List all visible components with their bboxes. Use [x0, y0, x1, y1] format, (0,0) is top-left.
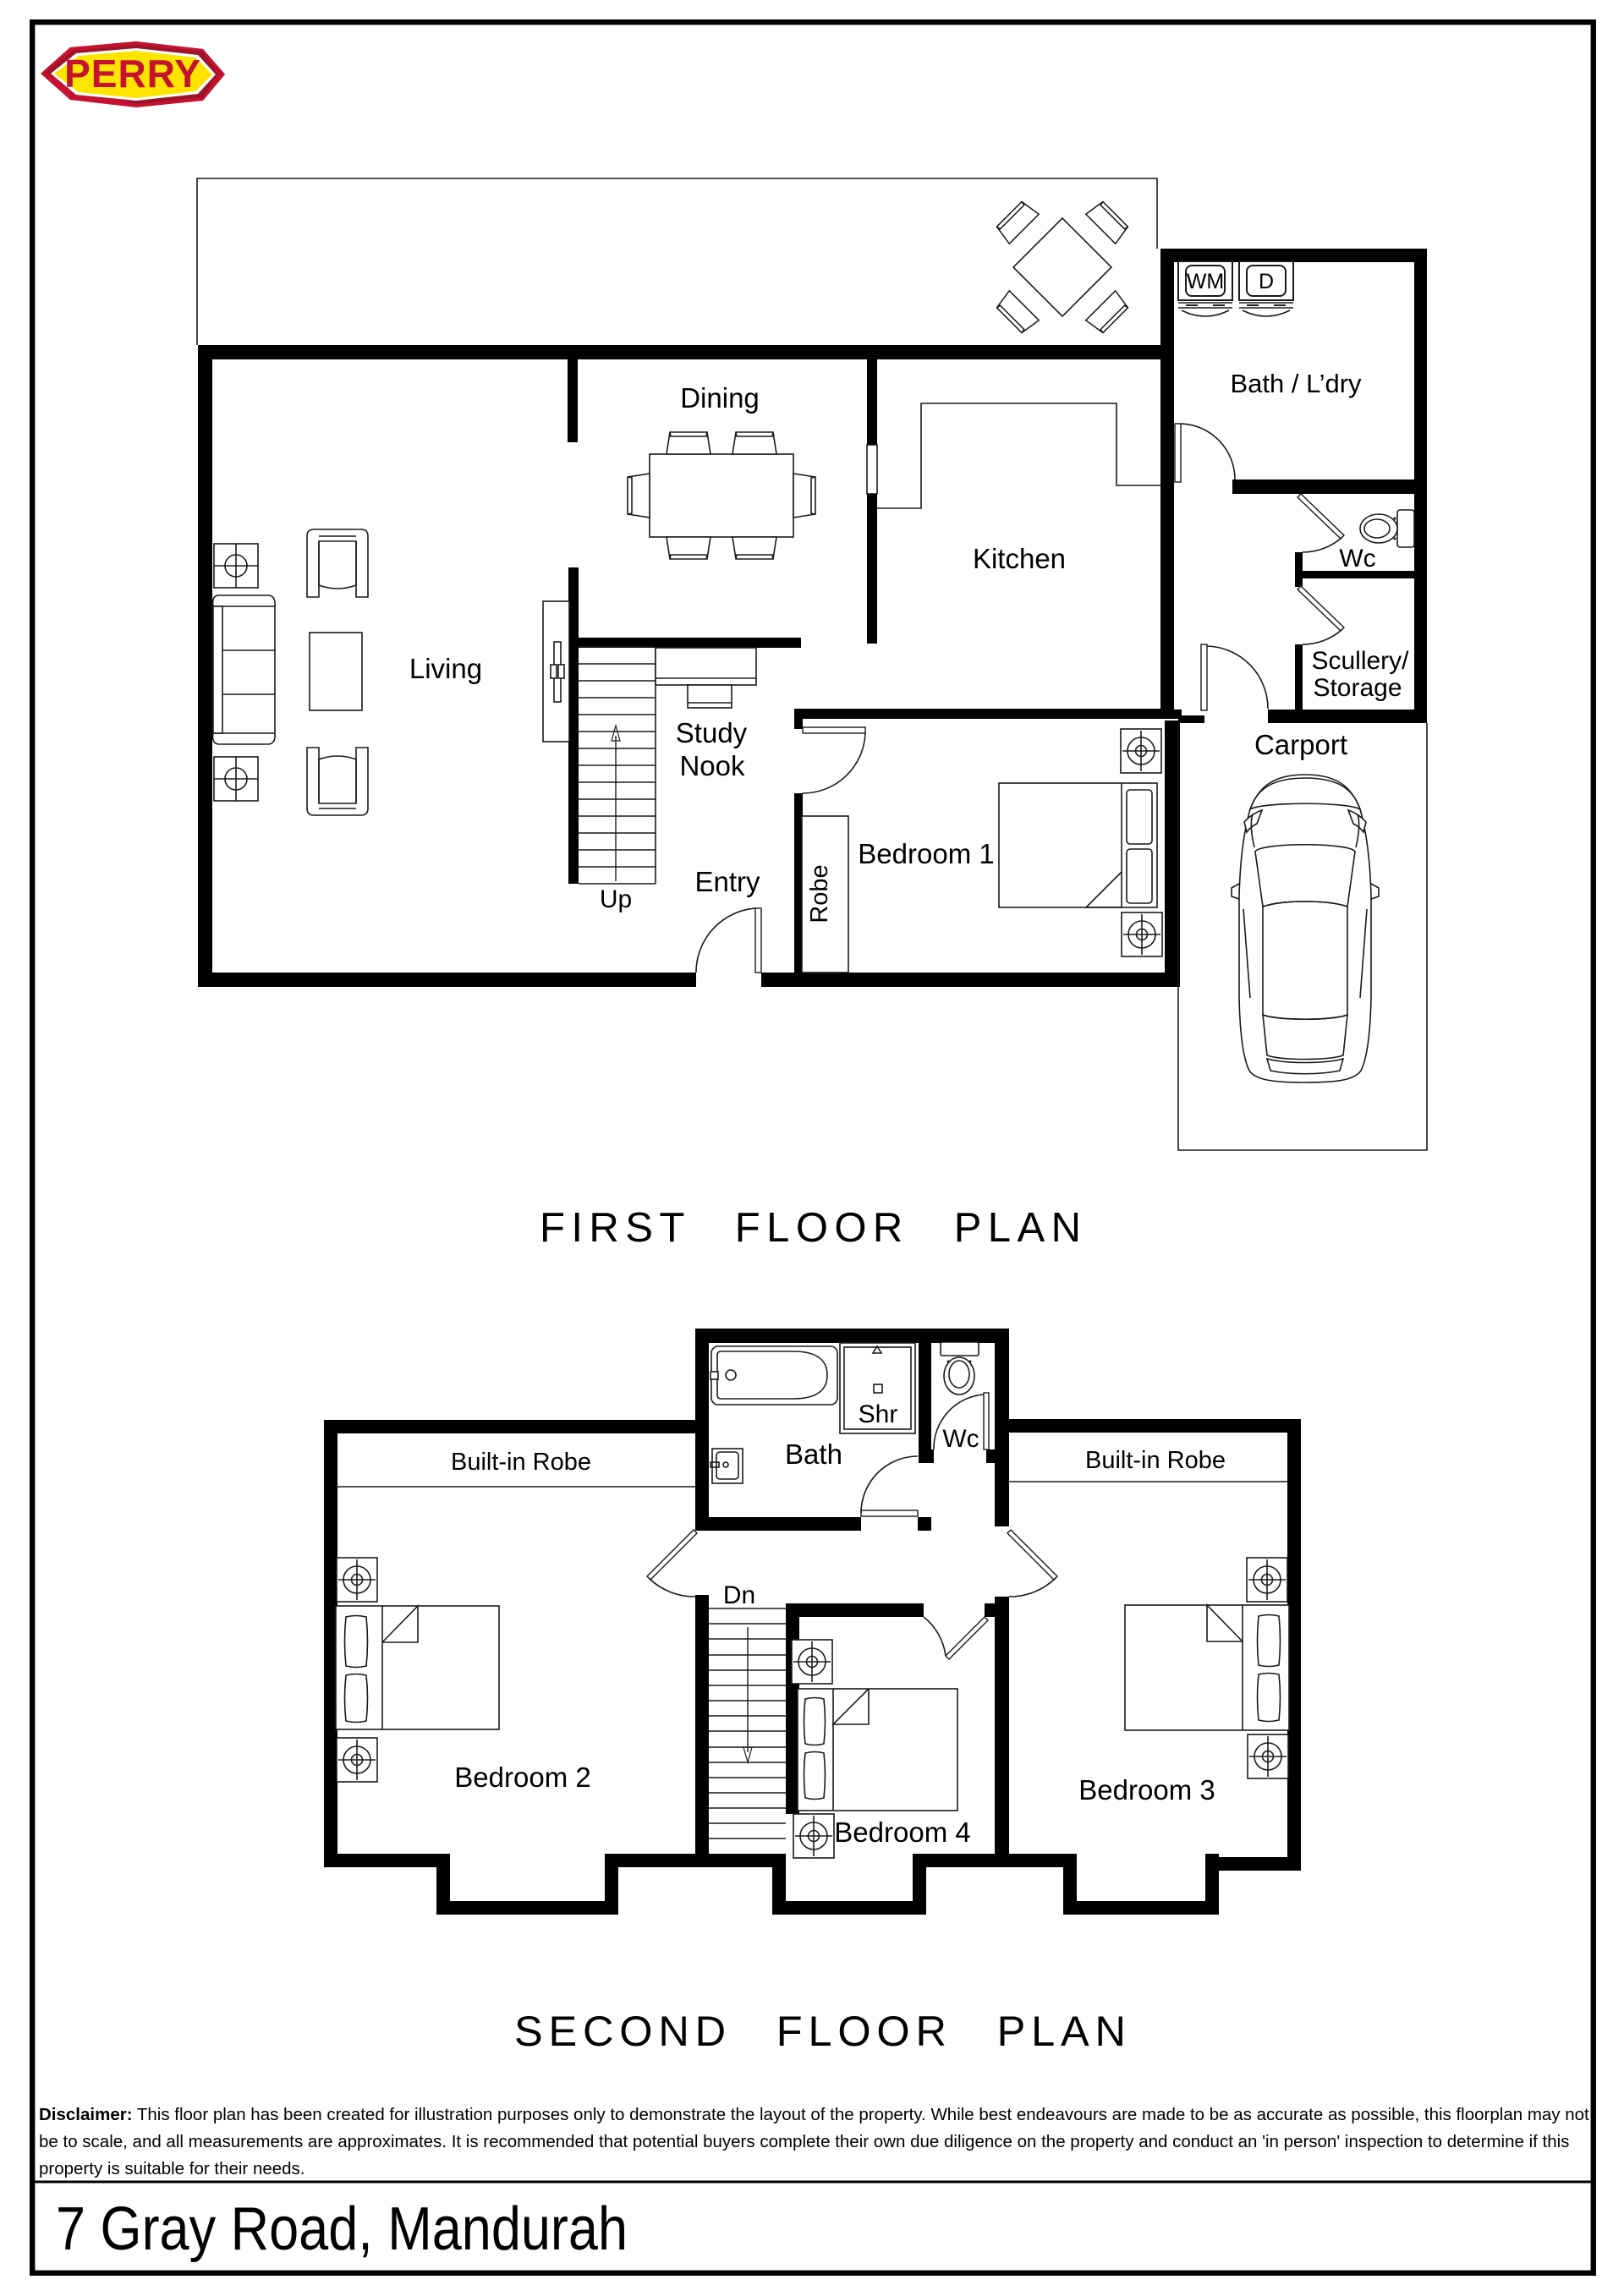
- svg-text:Dining: Dining: [680, 382, 760, 414]
- svg-text:Bath / L’dry: Bath / L’dry: [1230, 369, 1362, 398]
- svg-text:SECOND FLOOR PLAN: SECOND FLOOR PLAN: [514, 2007, 1126, 2055]
- svg-text:Kitchen: Kitchen: [973, 543, 1066, 574]
- svg-text:Shr: Shr: [859, 1400, 898, 1428]
- svg-text:Wc: Wc: [1339, 545, 1375, 573]
- svg-text:Living: Living: [409, 653, 482, 684]
- svg-text:be to scale, and all measureme: be to scale, and all measurements are ap…: [39, 2132, 1569, 2151]
- svg-text:Bedroom 2: Bedroom 2: [454, 1762, 590, 1793]
- svg-text:WM: WM: [1187, 270, 1224, 293]
- svg-text:Bedroom 1: Bedroom 1: [858, 838, 994, 869]
- svg-text:Bedroom 4: Bedroom 4: [834, 1817, 970, 1848]
- svg-text:Disclaimer: This floor plan ha: Disclaimer: This floor plan has been cre…: [39, 2105, 1589, 2124]
- svg-text:Up: Up: [600, 885, 632, 913]
- svg-text:Entry: Entry: [694, 866, 760, 897]
- svg-text:Built-in Robe: Built-in Robe: [1085, 1447, 1226, 1474]
- svg-text:Bath: Bath: [785, 1438, 842, 1470]
- svg-text:Wc: Wc: [942, 1425, 979, 1453]
- svg-text:Scullery/: Scullery/: [1311, 647, 1409, 675]
- svg-text:D: D: [1259, 270, 1274, 293]
- svg-text:Bedroom 3: Bedroom 3: [1078, 1774, 1215, 1806]
- svg-text:Nook: Nook: [679, 750, 745, 781]
- svg-text:Storage: Storage: [1313, 674, 1402, 702]
- svg-text:property is suitable for their: property is suitable for their needs.: [39, 2159, 305, 2178]
- svg-text:Dn: Dn: [723, 1581, 755, 1609]
- svg-text:Robe: Robe: [806, 864, 833, 923]
- svg-text:Study: Study: [676, 717, 748, 748]
- svg-text:7 Gray Road, Mandurah: 7 Gray Road, Mandurah: [56, 2195, 628, 2263]
- svg-text:Carport: Carport: [1254, 729, 1347, 760]
- svg-text:Built-in Robe: Built-in Robe: [451, 1449, 591, 1476]
- svg-text:PERRY: PERRY: [64, 52, 201, 96]
